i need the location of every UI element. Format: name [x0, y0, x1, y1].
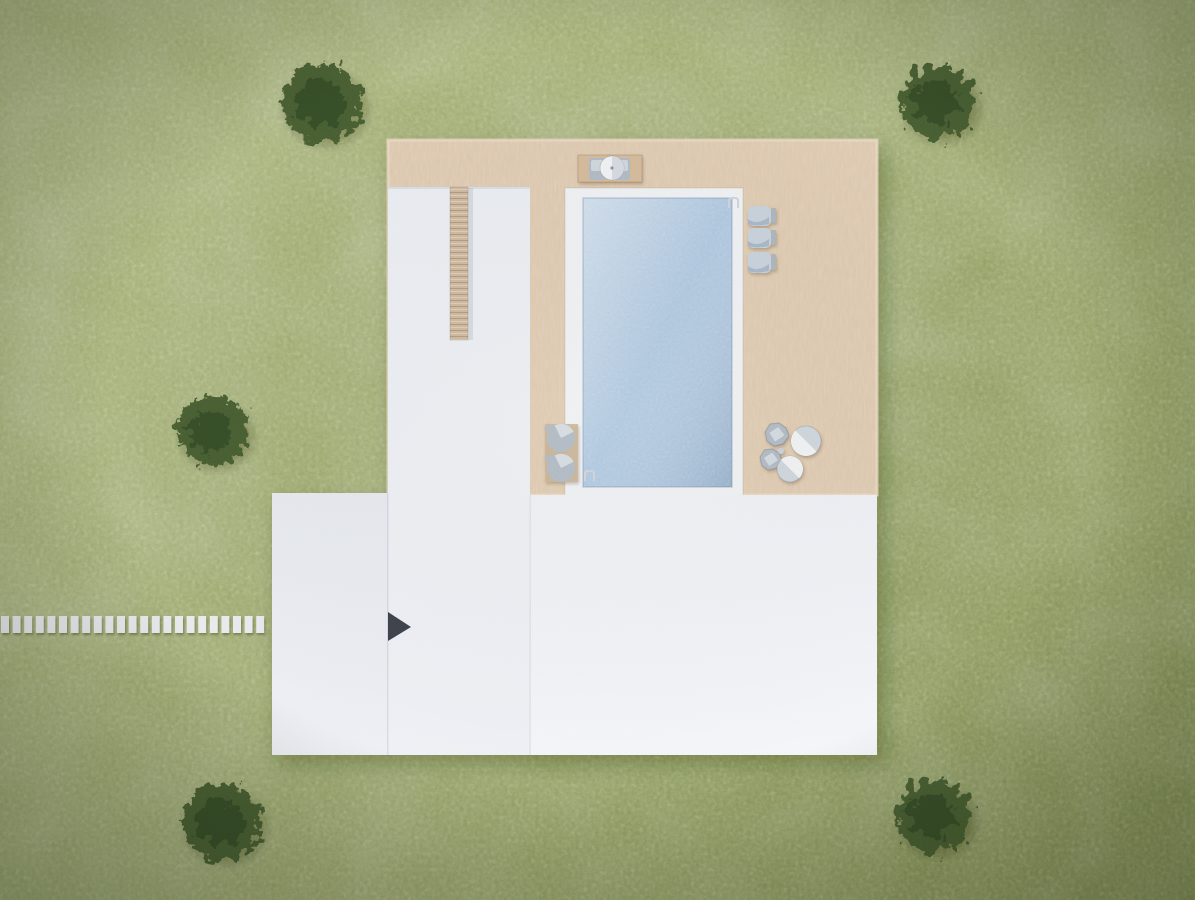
aerial-house-render — [0, 0, 1195, 900]
vignette-overlay — [0, 0, 1195, 900]
render-stage — [0, 0, 1195, 900]
